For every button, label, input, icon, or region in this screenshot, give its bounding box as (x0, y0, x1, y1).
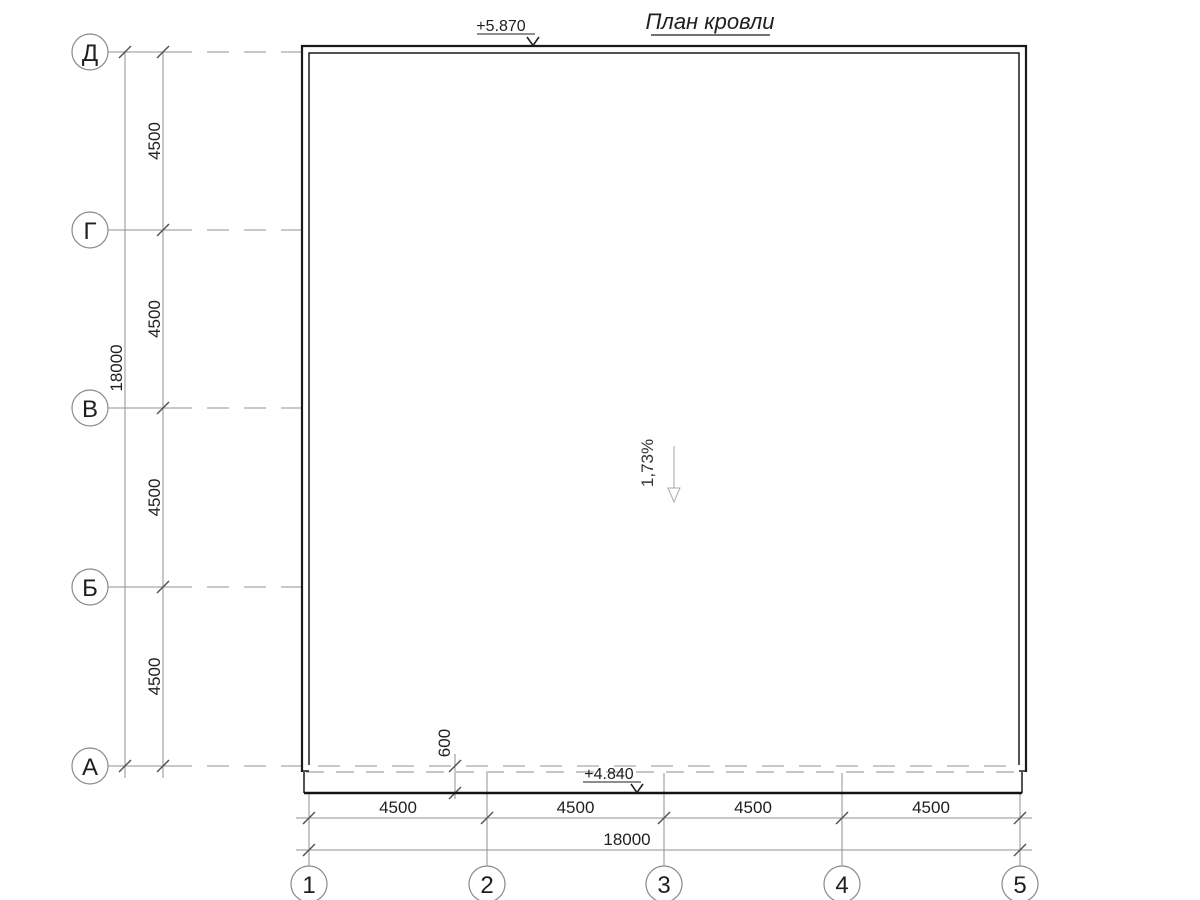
roof-parapet-inner-edge (309, 53, 1019, 765)
roof-plan-canvas: Д Г В Б А 1 2 3 4 5 4500 4500 4500 4500 … (0, 0, 1200, 900)
axis-label-col-4: 4 (835, 872, 848, 899)
slope-arrowhead-icon (668, 488, 680, 502)
slope-value: 1,73% (638, 439, 657, 487)
dim-bottom-total: 18000 (603, 830, 650, 849)
axis-label-row-5: А (82, 754, 98, 781)
row-axis-markers: Д Г В Б А (72, 34, 108, 784)
dim-left-total: 18000 (107, 344, 126, 391)
drawing-title-group: План кровли (645, 9, 774, 35)
page-title: План кровли (645, 9, 774, 34)
down-arrow-icon (631, 784, 643, 793)
roof-parapet-outer-edge (302, 46, 1026, 772)
axis-label-col-1: 1 (302, 872, 315, 899)
dim-bottom-segment-3: 4500 (734, 798, 772, 817)
axis-label-col-2: 2 (480, 872, 493, 899)
roof-plan-drawing: Д Г В Б А 1 2 3 4 5 4500 4500 4500 4500 … (0, 0, 1200, 900)
axis-label-row-4: Б (82, 575, 98, 602)
dim-left-segment-4: 4500 (145, 658, 164, 696)
dim-bottom-segment-1: 4500 (379, 798, 417, 817)
axis-label-row-1: Д (82, 40, 98, 67)
axis-label-col-5: 5 (1013, 872, 1026, 899)
dim-bottom-segment-4: 4500 (912, 798, 950, 817)
dimension-lines (125, 52, 1032, 850)
elevation-bottom-value: +4.840 (584, 766, 633, 783)
dim-left-segment-1: 4500 (145, 122, 164, 160)
elevation-mark-bottom: +4.840 (583, 766, 643, 793)
col-axis-markers: 1 2 3 4 5 (291, 866, 1038, 900)
elevation-mark-top: +5.870 (476, 18, 539, 46)
down-arrow-icon (527, 37, 539, 46)
elevation-top-value: +5.870 (476, 18, 525, 35)
dim-left-segment-2: 4500 (145, 300, 164, 338)
dim-eaves-overhang: 600 (435, 729, 454, 757)
axis-label-row-2: Г (84, 218, 97, 245)
dim-bottom-segment-2: 4500 (557, 798, 595, 817)
dimension-ticks (119, 46, 1026, 856)
axis-grid (108, 52, 1022, 866)
building-outline (302, 46, 1026, 793)
slope-annotation: 1,73% (638, 439, 680, 502)
dim-left-segment-3: 4500 (145, 479, 164, 517)
axis-label-row-3: В (82, 396, 98, 423)
dimension-labels: 4500 4500 4500 4500 18000 4500 4500 4500… (107, 122, 950, 849)
axis-label-col-3: 3 (657, 872, 670, 899)
